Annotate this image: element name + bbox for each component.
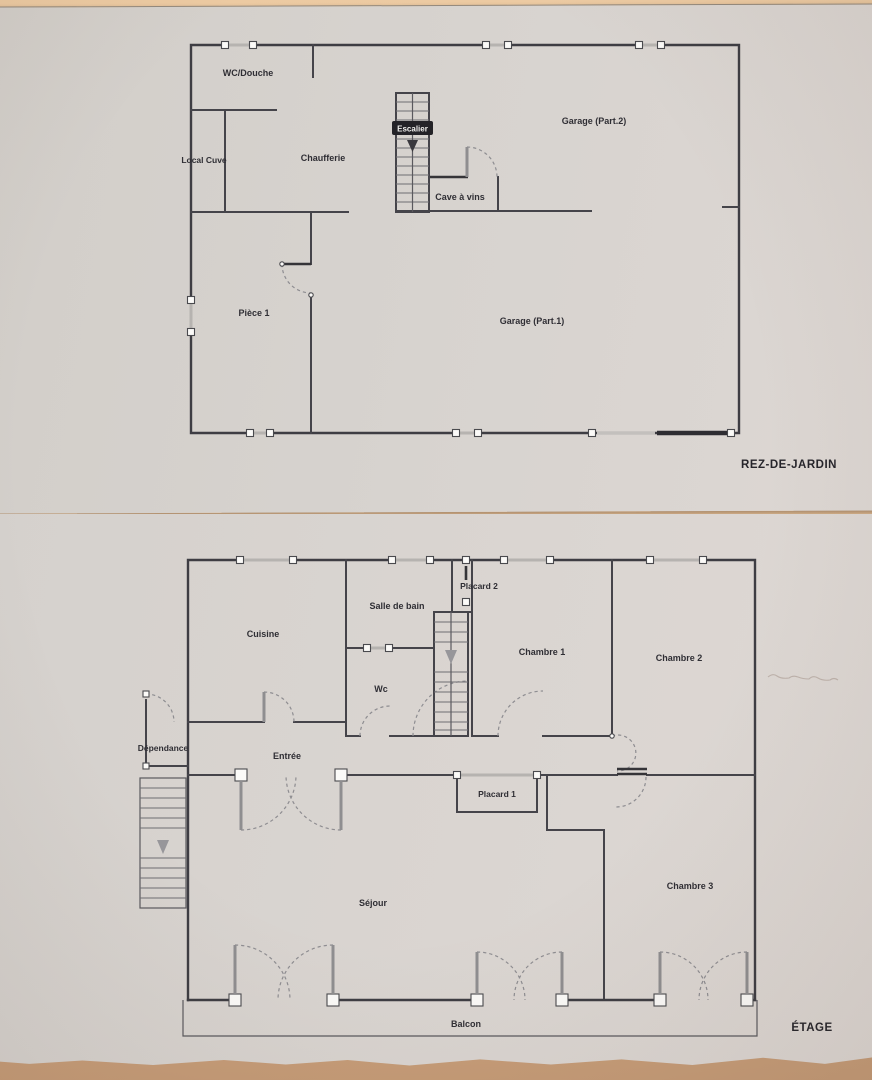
room-label-wc-douche: WC/Douche xyxy=(223,68,274,78)
room-label-chambre-3: Chambre 3 xyxy=(667,881,714,891)
room-label-sejour: Séjour xyxy=(359,898,388,908)
room-label-local-cuve: Local Cuve xyxy=(181,155,227,165)
etage-balcony-outline xyxy=(183,1000,757,1036)
rdj-garage-door xyxy=(589,430,735,437)
rdj-interior-walls xyxy=(191,45,739,433)
etage-entree-double-door xyxy=(235,769,347,830)
room-label-balcon: Balcon xyxy=(451,1019,481,1029)
arrow-down-icon xyxy=(407,140,418,152)
photo-of-floor-plans: { "plans": { "rdj": { "title": "REZ-DE-J… xyxy=(0,0,872,1080)
room-label-dependance: Dépendance xyxy=(138,743,189,753)
room-label-entree: Entrée xyxy=(273,751,301,761)
etage-chambre1-door xyxy=(498,691,543,736)
room-label-garage-part2: Garage (Part.2) xyxy=(562,116,627,126)
room-label-cave-a-vins: Cave à vins xyxy=(435,192,485,202)
etage-interior-walls xyxy=(188,560,755,1000)
room-label-wc: Wc xyxy=(374,684,388,694)
pencil-scribble xyxy=(768,675,838,681)
floor-plans-drawing: Escalier WC/Douche Chaufferie Local Cuve xyxy=(0,0,872,1080)
etage-exterior-stairs xyxy=(140,778,186,908)
room-label-chambre-2: Chambre 2 xyxy=(656,653,703,663)
etage-plan: Cuisine Salle de bain Placard 2 Chambre … xyxy=(138,557,838,1037)
room-label-salle-de-bain: Salle de bain xyxy=(369,601,424,611)
etage-dependance xyxy=(143,691,188,769)
arrow-down-icon xyxy=(157,840,169,854)
floor-title-etage: ÉTAGE xyxy=(791,1021,832,1034)
room-label-escalier: Escalier xyxy=(397,125,428,134)
rdj-plan: Escalier WC/Douche Chaufferie Local Cuve xyxy=(181,42,837,472)
room-label-garage-part1: Garage (Part.1) xyxy=(500,316,565,326)
etage-staircase xyxy=(434,612,468,736)
room-label-cuisine: Cuisine xyxy=(247,629,280,639)
rdj-staircase: Escalier xyxy=(392,93,433,212)
room-label-placard-2: Placard 2 xyxy=(460,581,498,591)
rdj-outer-walls xyxy=(191,45,739,433)
etage-balcony-doors xyxy=(229,945,753,1006)
room-label-piece-1: Pièce 1 xyxy=(238,308,269,318)
etage-wc-door xyxy=(360,706,390,736)
etage-stair-door xyxy=(413,681,468,736)
etage-placard1-door xyxy=(454,772,541,779)
room-label-placard-1: Placard 1 xyxy=(478,789,516,799)
floor-title-rez-de-jardin: REZ-DE-JARDIN xyxy=(741,459,837,471)
arrow-down-icon xyxy=(445,650,457,664)
etage-swing-door xyxy=(610,734,647,807)
rdj-windows xyxy=(188,42,665,437)
rdj-room-labels: WC/Douche Chaufferie Local Cuve Cave à v… xyxy=(181,68,626,326)
etage-cuisine-door xyxy=(264,692,294,722)
room-label-chambre-1: Chambre 1 xyxy=(519,647,566,657)
rdj-piece1-door xyxy=(280,262,313,297)
room-label-chaufferie: Chaufferie xyxy=(301,153,346,163)
rdj-cave-door xyxy=(467,147,497,177)
